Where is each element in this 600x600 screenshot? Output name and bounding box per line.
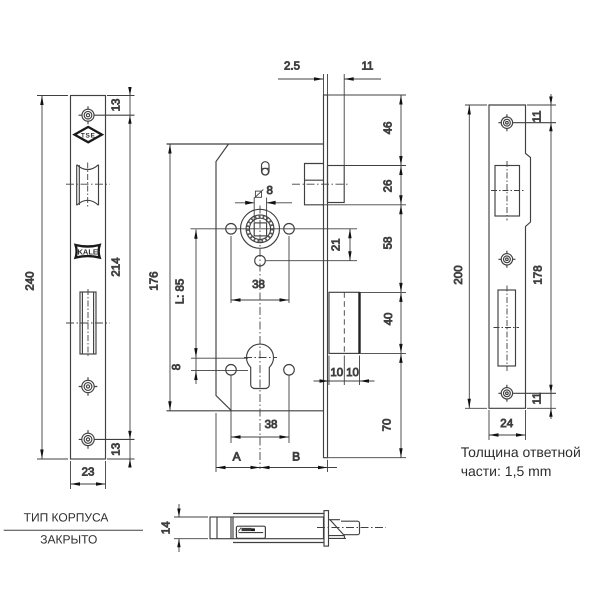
svg-text:TSE: TSE xyxy=(81,132,96,139)
svg-text:11: 11 xyxy=(531,111,543,123)
svg-text:10: 10 xyxy=(330,367,343,379)
svg-text:13: 13 xyxy=(111,99,123,112)
svg-text:14: 14 xyxy=(160,521,172,534)
svg-text:21: 21 xyxy=(331,238,343,251)
svg-text:178: 178 xyxy=(532,265,544,284)
svg-text:8: 8 xyxy=(171,364,183,370)
svg-text:38: 38 xyxy=(265,419,278,431)
svg-text:214: 214 xyxy=(111,257,123,277)
svg-text:38: 38 xyxy=(252,279,265,291)
svg-text:200: 200 xyxy=(453,265,465,284)
svg-text:23: 23 xyxy=(82,467,95,479)
svg-text:11: 11 xyxy=(531,393,543,405)
svg-text:176: 176 xyxy=(149,271,161,290)
svg-text:8: 8 xyxy=(267,185,273,197)
svg-text:46: 46 xyxy=(383,122,395,135)
svg-text:24: 24 xyxy=(500,418,513,430)
svg-text:240: 240 xyxy=(25,271,37,290)
svg-text:A: A xyxy=(233,450,241,464)
svg-text:11: 11 xyxy=(362,61,374,73)
svg-text:10: 10 xyxy=(346,367,359,379)
svg-text:KALE: KALE xyxy=(77,247,97,256)
svg-text:Толщина ответной: Толщина ответной xyxy=(461,444,581,460)
svg-text:ЗАКРЫТО: ЗАКРЫТО xyxy=(40,533,97,547)
svg-text:40: 40 xyxy=(383,313,395,326)
svg-text:58: 58 xyxy=(383,237,395,250)
svg-text:26: 26 xyxy=(383,180,395,193)
svg-text:2.5: 2.5 xyxy=(284,61,300,73)
svg-text:ТИП КОРПУСА: ТИП КОРПУСА xyxy=(24,511,109,525)
svg-text:13: 13 xyxy=(111,443,123,456)
svg-text:части: 1,5 mm: части: 1,5 mm xyxy=(461,463,552,479)
svg-text:70: 70 xyxy=(382,419,394,432)
svg-text:L: 85: L: 85 xyxy=(175,279,187,305)
svg-text:B: B xyxy=(292,450,300,464)
